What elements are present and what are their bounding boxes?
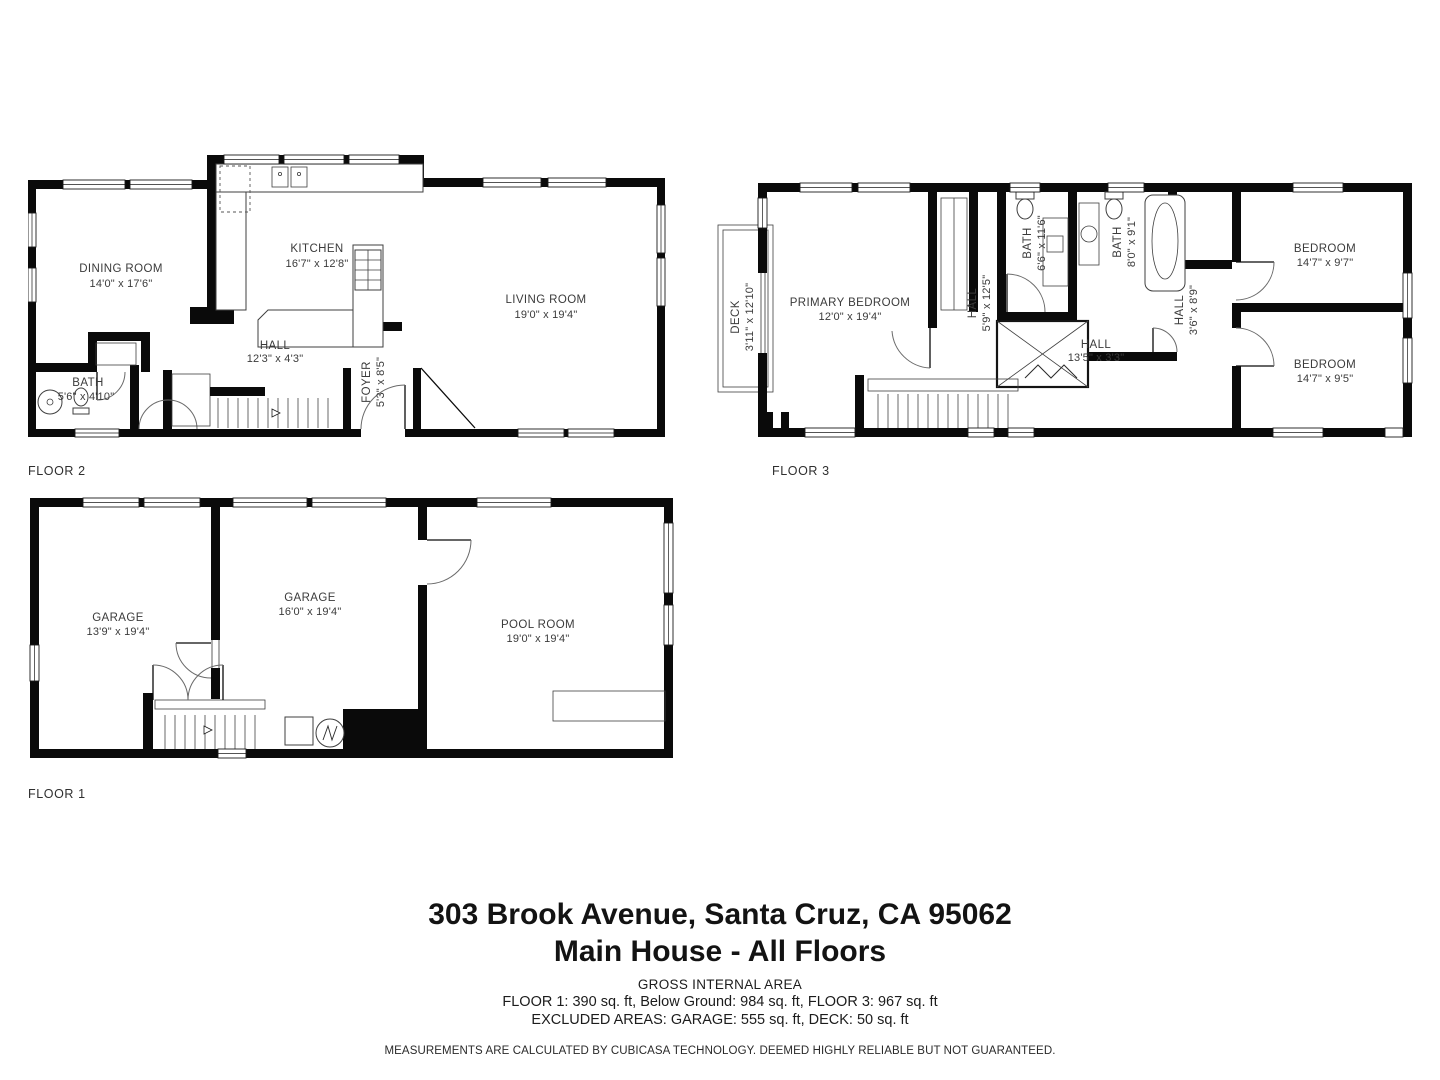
room-label-garage1: GARAGE <box>92 612 144 624</box>
floor2-label: FLOOR 2 <box>28 464 86 478</box>
room-label-deck: DECK <box>730 300 742 334</box>
primary-bedroom-door <box>892 328 930 368</box>
floor3-label: FLOOR 3 <box>772 464 830 478</box>
water-heater-icon <box>316 719 344 747</box>
angled-wall <box>421 368 475 428</box>
bath2-door <box>1153 328 1177 352</box>
floor3-walls <box>758 183 1412 437</box>
room-label-hall: HALL <box>260 340 291 352</box>
plan-subtitle: Main House - All Floors <box>0 933 1440 970</box>
vanity-sink-icon <box>1079 203 1099 265</box>
room-dims-bath1: 6'6" x 11'6" <box>1036 215 1048 271</box>
floor1-plan: GARAGE 13'9" x 19'4" GARAGE 16'0" x 19'4… <box>28 493 678 765</box>
bedroom1-door <box>1232 262 1274 303</box>
closet-shelf <box>96 343 136 365</box>
room-label-garage2: GARAGE <box>284 592 336 604</box>
bath1-door <box>1007 274 1045 312</box>
room-label-bedroom1: BEDROOM <box>1294 243 1356 255</box>
stair-direction-arrow-icon <box>204 726 212 734</box>
room-label-hall1: HALL <box>967 288 979 319</box>
room-dims-pool: 19'0" x 19'4" <box>507 633 570 645</box>
room-dims-hall: 12'3" x 4'3" <box>247 353 304 365</box>
area-heading: GROSS INTERNAL AREA <box>0 977 1440 992</box>
room-label-bedroom2: BEDROOM <box>1294 359 1356 371</box>
title-block: 303 Brook Avenue, Santa Cruz, CA 95062 M… <box>0 896 1440 1057</box>
room-dims-hall3: 13'5" x 3'3" <box>1068 352 1125 364</box>
room-dims-garage1: 13'9" x 19'4" <box>87 626 150 638</box>
room-label-pool: POOL ROOM <box>501 619 575 631</box>
room-dims-hall1: 5'9" x 12'5" <box>981 275 993 332</box>
room-label-foyer: FOYER <box>361 361 373 403</box>
foyer-entry-opening <box>361 429 405 437</box>
deck-slider <box>758 273 767 353</box>
address-line: 303 Brook Avenue, Santa Cruz, CA 95062 <box>0 896 1440 933</box>
garage-door <box>176 643 211 678</box>
floor1-label: FLOOR 1 <box>28 787 86 801</box>
room-label-hall3: HALL <box>1081 339 1112 351</box>
room-dims-kitchen: 16'7" x 12'8" <box>286 258 349 270</box>
area-line-1: FLOOR 1: 390 sq. ft, Below Ground: 984 s… <box>0 994 1440 1010</box>
room-dims-living: 19'0" x 19'4" <box>515 309 578 321</box>
pool-room-door <box>418 540 471 585</box>
floor2-plan: DINING ROOM 14'0" x 17'6" KITCHEN 16'7" … <box>28 150 668 440</box>
room-label-primary: PRIMARY BEDROOM <box>790 297 911 309</box>
primary-closet <box>941 198 967 310</box>
room-label-dining: DINING ROOM <box>79 263 163 275</box>
room-dims-bedroom2: 14'7" x 9'5" <box>1297 373 1354 385</box>
room-dims-bedroom1: 14'7" x 9'7" <box>1297 257 1354 269</box>
room-label-kitchen: KITCHEN <box>290 243 343 255</box>
bench <box>553 691 665 721</box>
stove-icon <box>355 250 381 290</box>
room-dims-bath2: 8'0" x 9'1" <box>1126 217 1138 267</box>
area-line-2: EXCLUDED AREAS: GARAGE: 555 sq. ft, DECK… <box>0 1012 1440 1028</box>
floor3-plan: DECK 3'11" x 12'10" PRIMARY BEDROOM 12'0… <box>713 178 1415 440</box>
room-label-bath: BATH <box>72 377 103 389</box>
room-label-bath2: BATH <box>1112 226 1124 257</box>
room-dims-foyer: 5'3" x 8'5" <box>375 357 387 407</box>
bedroom2-door <box>1232 328 1274 366</box>
room-dims-hall2: 3'6" x 8'9" <box>1188 285 1200 335</box>
room-label-bath1: BATH <box>1022 227 1034 258</box>
room-dims-garage2: 16'0" x 19'4" <box>279 606 342 618</box>
toilet-icon <box>1105 192 1123 219</box>
room-label-living: LIVING ROOM <box>505 294 586 306</box>
room-dims-dining: 14'0" x 17'6" <box>90 278 153 290</box>
room-dims-deck: 3'11" x 12'10" <box>744 283 756 351</box>
room-label-hall2: HALL <box>1174 295 1186 326</box>
furnace-icon <box>285 717 313 745</box>
stairs <box>868 379 1018 428</box>
stair-direction-arrow-icon <box>272 409 280 417</box>
room-dims-primary: 12'0" x 19'4" <box>819 311 882 323</box>
toilet-icon <box>1016 192 1034 219</box>
bathtub-icon <box>1145 195 1185 291</box>
cased-opening <box>212 640 219 668</box>
stairs <box>155 700 265 749</box>
disclaimer-text: MEASUREMENTS ARE CALCULATED BY CUBICASA … <box>0 1045 1440 1057</box>
floorplan-page: DINING ROOM 14'0" x 17'6" KITCHEN 16'7" … <box>0 0 1440 1080</box>
room-dims-bath: 5'6" x 4'10" <box>58 391 115 403</box>
kitchen-counter <box>216 164 423 310</box>
